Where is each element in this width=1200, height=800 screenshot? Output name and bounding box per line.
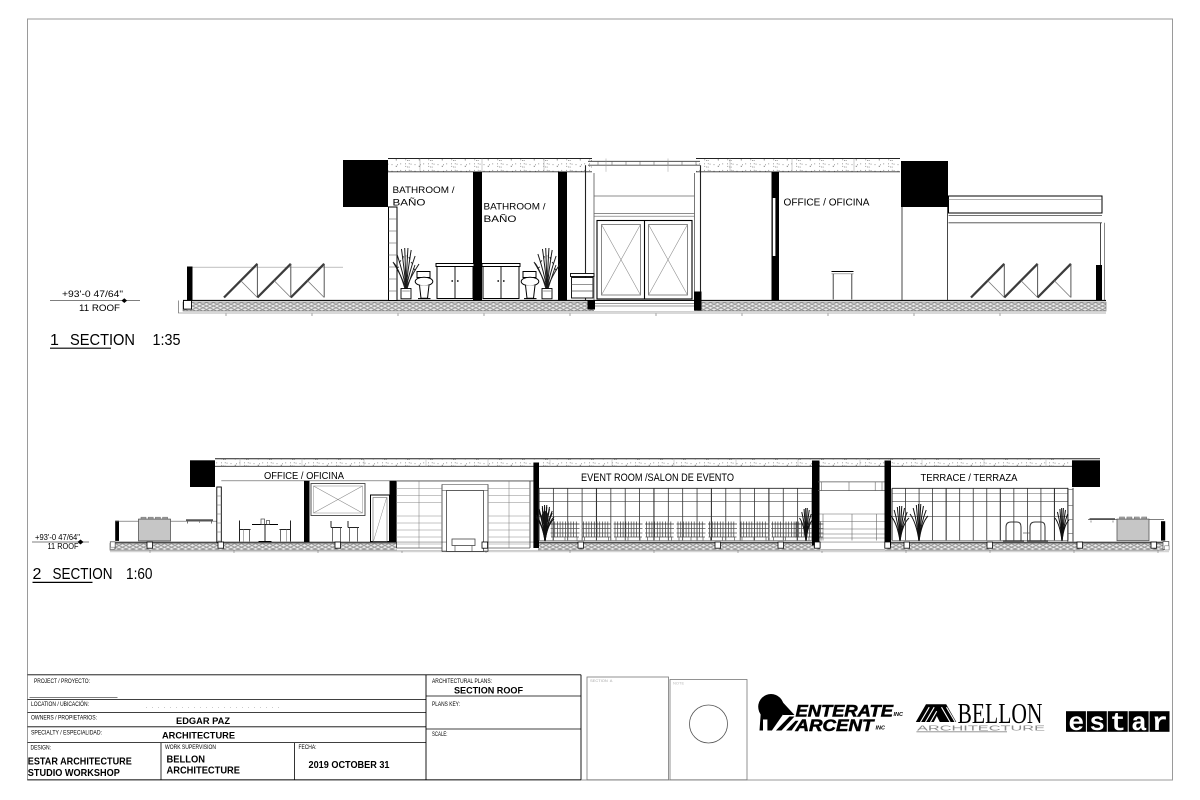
svg-text:11 ROOF: 11 ROOF (48, 542, 79, 551)
svg-text:1:60: 1:60 (126, 566, 153, 583)
svg-text:EDGAR PAZ: EDGAR PAZ (176, 716, 230, 727)
svg-text:1:35: 1:35 (153, 332, 181, 349)
svg-text:PLANS KEY:: PLANS KEY: (432, 701, 460, 708)
svg-text:s: s (1089, 708, 1105, 738)
svg-text:ARCENT: ARCENT (794, 717, 876, 735)
svg-text:SECTION: SECTION (53, 566, 113, 583)
svg-text:ARCHITECTURAL PLANS:: ARCHITECTURAL PLANS: (432, 678, 492, 685)
svg-text:ESTAR ARCHITECTURE: ESTAR ARCHITECTURE (28, 757, 132, 768)
svg-text:INC: INC (894, 712, 905, 718)
svg-text:ARCHITECTURE: ARCHITECTURE (167, 765, 241, 776)
svg-text:FECHA:: FECHA: (299, 744, 317, 751)
svg-text:OWNERS / PROPIETARIOS:: OWNERS / PROPIETARIOS: (31, 715, 97, 722)
svg-text:a: a (1131, 708, 1147, 738)
svg-text:TERRACE / TERRAZA: TERRACE / TERRAZA (921, 472, 1018, 484)
svg-text:BATHROOM /: BATHROOM / (393, 185, 455, 196)
svg-text:ARCHITECTURE: ARCHITECTURE (162, 731, 236, 742)
svg-text:OFFICE / OFICINA: OFFICE / OFICINA (784, 197, 870, 209)
svg-text:STUDIO WORKSHOP: STUDIO WORKSHOP (28, 768, 120, 779)
svg-text:WORK SUPERVISION: WORK SUPERVISION (165, 744, 216, 751)
svg-text:INC: INC (876, 726, 887, 732)
svg-text:SECTION: SECTION (70, 332, 135, 349)
svg-text:BELLON: BELLON (167, 755, 206, 766)
svg-text:1: 1 (50, 332, 59, 349)
svg-text:SECTION ROOF: SECTION ROOF (454, 685, 523, 696)
svg-text:DESIGN:: DESIGN: (31, 744, 52, 751)
svg-text:BATHROOM /: BATHROOM / (484, 201, 546, 212)
svg-text:t: t (1110, 708, 1126, 738)
svg-text:2: 2 (33, 566, 42, 583)
svg-text:BAÑO: BAÑO (393, 198, 426, 209)
svg-text:e: e (1068, 708, 1084, 738)
svg-text:SCALE:: SCALE: (432, 731, 448, 738)
svg-text:EVENT ROOM /SALON DE EVENTO: EVENT ROOM /SALON DE EVENTO (581, 472, 734, 484)
svg-text:BAÑO: BAÑO (484, 214, 517, 225)
svg-text:2019 OCTOBER 31: 2019 OCTOBER 31 (309, 760, 390, 771)
svg-text:SPECIALTY / ESPECIALIDAD:: SPECIALTY / ESPECIALIDAD: (31, 729, 102, 736)
svg-text:+93'-0 47/64": +93'-0 47/64" (62, 289, 123, 300)
svg-text:r: r (1152, 708, 1168, 738)
svg-text:NOTE: NOTE (673, 681, 684, 686)
svg-text:OFFICE / OFICINA: OFFICE / OFICINA (264, 471, 344, 482)
svg-text:SECTION A: SECTION A (590, 678, 613, 683)
svg-text:PROJECT / PROYECTO:: PROJECT / PROYECTO: (34, 678, 90, 685)
svg-text:+93'-0 47/64": +93'-0 47/64" (35, 533, 80, 542)
svg-text:LOCATION / UBICACIÓN:: LOCATION / UBICACIÓN: (31, 701, 89, 708)
svg-text:11 ROOF: 11 ROOF (79, 303, 120, 314)
